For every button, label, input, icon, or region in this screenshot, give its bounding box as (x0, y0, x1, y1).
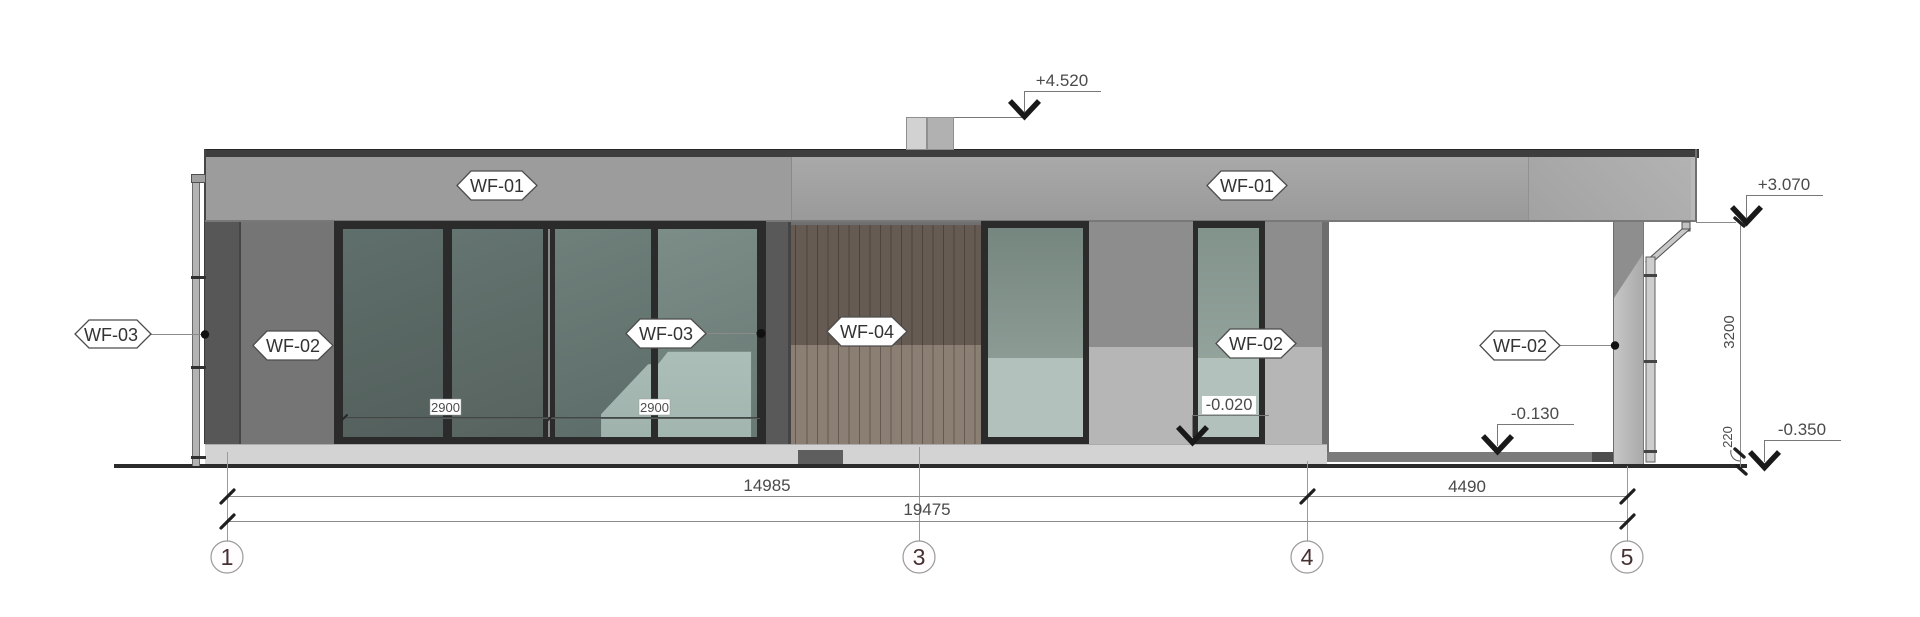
svg-text:14985: 14985 (743, 476, 790, 495)
svg-text:WF-04: WF-04 (840, 322, 894, 342)
svg-text:+3.070: +3.070 (1758, 175, 1810, 194)
svg-text:4: 4 (1301, 544, 1314, 570)
svg-text:WF-01: WF-01 (470, 176, 524, 196)
svg-text:WF-02: WF-02 (1493, 336, 1547, 356)
svg-text:WF-03: WF-03 (84, 325, 138, 345)
svg-text:3: 3 (913, 544, 926, 570)
svg-text:3200: 3200 (1721, 315, 1738, 348)
svg-text:2900: 2900 (640, 400, 669, 415)
svg-text:2900: 2900 (431, 400, 460, 415)
svg-text:-0.350: -0.350 (1778, 420, 1826, 439)
svg-text:WF-01: WF-01 (1220, 176, 1274, 196)
svg-text:4490: 4490 (1448, 477, 1486, 496)
svg-text:5: 5 (1621, 544, 1634, 570)
svg-text:19475: 19475 (903, 500, 950, 519)
svg-text:220: 220 (1720, 426, 1735, 448)
svg-text:-0.020: -0.020 (1206, 396, 1253, 414)
svg-text:WF-03: WF-03 (639, 324, 693, 344)
svg-text:WF-02: WF-02 (266, 336, 320, 356)
svg-text:+4.520: +4.520 (1036, 71, 1088, 90)
svg-text:-0.130: -0.130 (1511, 404, 1559, 423)
svg-text:1: 1 (221, 544, 234, 570)
svg-text:WF-02: WF-02 (1229, 334, 1283, 354)
